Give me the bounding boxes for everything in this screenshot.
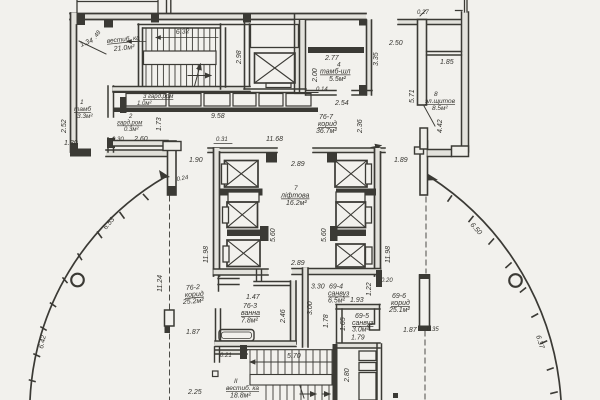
svg-text:5.5м²: 5.5м² xyxy=(329,76,347,83)
svg-text:1.87: 1.87 xyxy=(186,329,201,336)
svg-text:2.50: 2.50 xyxy=(388,40,403,47)
svg-text:76-7: 76-7 xyxy=(319,114,334,121)
svg-text:9.58: 9.58 xyxy=(211,113,225,120)
svg-text:2.46: 2.46 xyxy=(280,309,287,324)
svg-text:1.89: 1.89 xyxy=(394,157,408,164)
svg-text:1.79: 1.79 xyxy=(351,335,365,342)
svg-text:1.90: 1.90 xyxy=(189,157,203,164)
svg-text:1.78: 1.78 xyxy=(323,314,330,328)
svg-text:69-6: 69-6 xyxy=(392,293,406,300)
svg-text:вестиб. ка: вестиб. ка xyxy=(226,384,259,392)
svg-text:корид: корид xyxy=(318,120,337,128)
svg-text:ліфтова: ліфтова xyxy=(280,192,309,200)
svg-text:2.89: 2.89 xyxy=(290,161,305,168)
svg-text:0.27: 0.27 xyxy=(417,10,429,16)
svg-text:5.60: 5.60 xyxy=(270,228,277,242)
svg-text:2: 2 xyxy=(128,114,133,120)
svg-text:1.30: 1.30 xyxy=(64,140,78,147)
svg-text:тамб-шл: тамб-шл xyxy=(320,68,351,76)
svg-text:1.47: 1.47 xyxy=(246,294,261,301)
svg-text:7.8м²: 7.8м² xyxy=(241,318,259,325)
svg-text:1.85: 1.85 xyxy=(440,59,454,66)
svg-text:2.52: 2.52 xyxy=(61,119,68,134)
svg-text:36.7м²: 36.7м² xyxy=(316,128,337,135)
svg-text:1.0м²: 1.0м² xyxy=(137,101,152,107)
svg-text:1.73: 1.73 xyxy=(156,117,163,131)
svg-text:6.5м²: 6.5м² xyxy=(328,298,346,305)
svg-text:11.24: 11.24 xyxy=(157,275,164,292)
svg-text:санвуз: санвуз xyxy=(328,291,350,298)
svg-text:11.98: 11.98 xyxy=(385,246,392,263)
svg-text:3.35: 3.35 xyxy=(373,52,380,66)
svg-text:3.3м²: 3.3м² xyxy=(77,113,93,120)
svg-text:0.20: 0.20 xyxy=(381,278,393,284)
svg-text:1.22: 1.22 xyxy=(366,282,373,296)
svg-text:11.68: 11.68 xyxy=(266,136,283,143)
svg-text:0.14: 0.14 xyxy=(316,87,328,93)
svg-text:2.00: 2.00 xyxy=(312,68,319,83)
svg-text:2.80: 2.80 xyxy=(344,368,351,383)
svg-text:1.93: 1.93 xyxy=(350,297,364,304)
svg-text:2.60: 2.60 xyxy=(133,136,148,143)
svg-text:4.42: 4.42 xyxy=(437,119,444,133)
svg-text:корид: корид xyxy=(391,299,410,307)
svg-text:5.60: 5.60 xyxy=(321,228,328,242)
svg-text:3.30: 3.30 xyxy=(311,284,325,291)
svg-text:1.65: 1.65 xyxy=(340,317,347,331)
svg-text:2.98: 2.98 xyxy=(236,50,243,65)
svg-text:69-4: 69-4 xyxy=(329,284,343,291)
svg-text:0.35: 0.35 xyxy=(427,327,439,333)
svg-text:1.87: 1.87 xyxy=(403,327,418,334)
svg-text:8: 8 xyxy=(434,91,438,98)
svg-text:3.0м²: 3.0м² xyxy=(352,327,370,334)
svg-text:76-3: 76-3 xyxy=(243,303,257,310)
svg-text:4: 4 xyxy=(337,62,341,69)
svg-text:7: 7 xyxy=(294,185,298,192)
svg-text:25.1м²: 25.1м² xyxy=(388,307,410,314)
svg-text:8.5м²: 8.5м² xyxy=(432,105,448,112)
svg-text:3 гард.ром: 3 гард.ром xyxy=(143,94,173,100)
svg-text:0.30: 0.30 xyxy=(112,137,124,143)
svg-text:2.89: 2.89 xyxy=(290,260,305,267)
svg-text:0.3м²: 0.3м² xyxy=(124,127,139,133)
svg-text:11.98: 11.98 xyxy=(203,246,210,263)
svg-text:0.31: 0.31 xyxy=(216,137,228,143)
svg-text:II: II xyxy=(234,378,238,385)
svg-text:ванна: ванна xyxy=(241,310,260,317)
svg-text:2.25: 2.25 xyxy=(187,389,202,396)
svg-text:16.2м²: 16.2м² xyxy=(286,200,307,207)
svg-text:69-5: 69-5 xyxy=(355,313,369,320)
svg-text:гард.ром: гард.ром xyxy=(117,121,142,127)
svg-text:0.21: 0.21 xyxy=(220,353,232,359)
svg-text:эл.щитов: эл.щитов xyxy=(425,98,456,105)
svg-text:2.54: 2.54 xyxy=(334,100,349,107)
svg-text:1: 1 xyxy=(80,99,84,106)
svg-text:2.36: 2.36 xyxy=(357,119,364,134)
svg-text:5.70: 5.70 xyxy=(287,353,301,360)
svg-text:6.32: 6.32 xyxy=(176,28,190,36)
svg-text:3.00: 3.00 xyxy=(307,301,314,315)
svg-text:18.8м²: 18.8м² xyxy=(230,393,251,400)
svg-text:5.71: 5.71 xyxy=(409,89,416,103)
svg-text:тамб: тамб xyxy=(74,105,91,113)
